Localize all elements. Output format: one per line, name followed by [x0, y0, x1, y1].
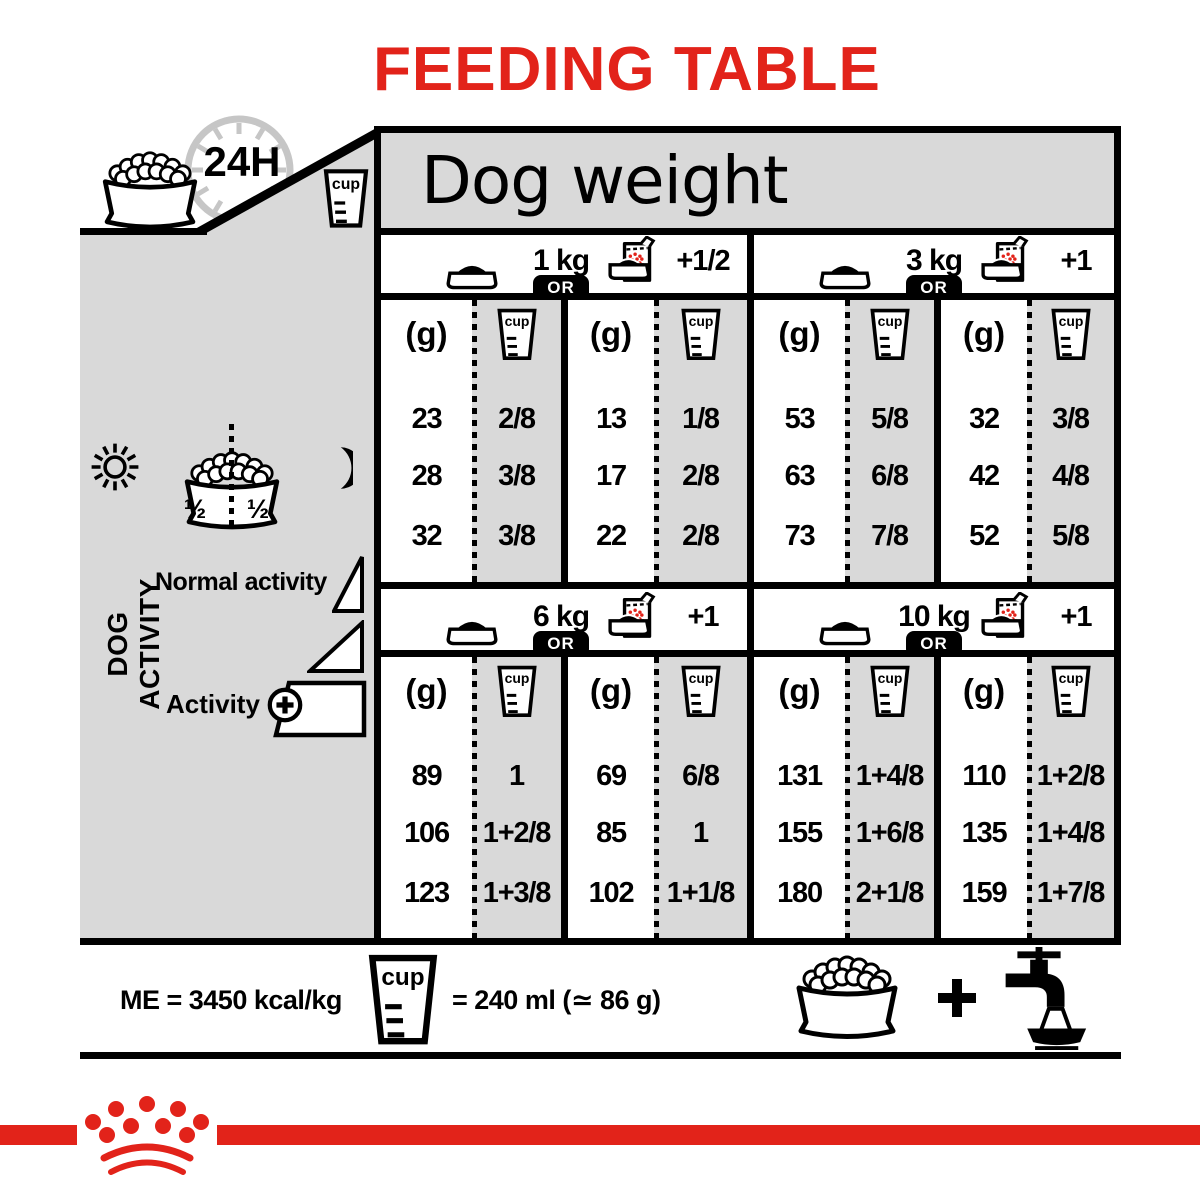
dog-activity-label: DOG ACTIVITY: [102, 544, 136, 744]
brand-stripe-left: [0, 1125, 77, 1145]
cell: 135: [941, 813, 1027, 853]
bowl-icon: [445, 257, 499, 291]
cell: 69: [568, 756, 654, 796]
section-header-6kg: 6 kg OR +1: [381, 589, 747, 650]
column-divider: [561, 300, 568, 582]
data-grid-10kg: (g) 131 155 180 1+4/8 1+6/8 2+1/8 (g) 11…: [754, 657, 1114, 938]
pouch-extra-label: +1: [1040, 601, 1112, 634]
cell: 1+2/8: [472, 813, 561, 853]
cell: 1: [654, 813, 747, 853]
table-border-right: [1114, 126, 1121, 945]
dotted-divider: [845, 657, 850, 938]
activity-ramp-medium-icon: [307, 620, 365, 674]
dotted-divider: [472, 657, 477, 938]
dotted-divider: [1027, 657, 1032, 938]
activity-label: Activity: [166, 689, 266, 720]
activity-plus-icon: [266, 686, 304, 724]
cell: 5/8: [1027, 516, 1114, 556]
cup-icon: [1049, 664, 1093, 718]
cell: 180: [754, 873, 845, 913]
table-border-bottom: [80, 938, 1121, 945]
activity-ramp-small-icon: [332, 554, 365, 614]
cell: 1+6/8: [845, 813, 934, 853]
cell: 32: [381, 516, 472, 556]
cup-icon: [495, 307, 539, 361]
cups-column-mixed: 1/8 2/8 2/8: [654, 300, 747, 582]
cell: 6/8: [654, 756, 747, 796]
pouch-extra-label: +1: [1040, 245, 1112, 278]
dotted-divider: [1027, 300, 1032, 582]
cell: 13: [568, 399, 654, 439]
cup-icon: [362, 953, 444, 1045]
dog-weight-header: Dog weight: [381, 133, 1114, 228]
table-rule-3: [374, 582, 1121, 589]
grams-column: (g) 53 63 73: [754, 300, 845, 582]
cup-equivalence-label: = 240 ml (≃ 86 g): [452, 984, 682, 1016]
royal-canin-crown-logo: [80, 1096, 214, 1184]
table-rule-2: [374, 293, 1121, 300]
cell: 85: [568, 813, 654, 853]
cell: 53: [754, 399, 845, 439]
cell: 2/8: [472, 399, 561, 439]
cup-icon: [321, 168, 371, 228]
dotted-divider: [472, 300, 477, 582]
weight-label: 10 kg: [884, 600, 984, 634]
cell: 106: [381, 813, 472, 853]
cell: 123: [381, 873, 472, 913]
grams-unit: (g): [754, 672, 845, 710]
me-kcal-label: ME = 3450 kcal/kg: [120, 984, 350, 1016]
moon-icon: [321, 446, 353, 490]
column-divider: [934, 300, 941, 582]
cell: 2/8: [654, 456, 747, 496]
cell: 22: [568, 516, 654, 556]
grams-unit: (g): [568, 672, 654, 710]
weight-label: 3 kg: [884, 244, 984, 278]
feeding-table-page: cup FEEDING TABLE: [0, 0, 1200, 1200]
pouch-extra-label: +1/2: [667, 245, 739, 278]
dog-weight-label: Dog weight: [421, 142, 788, 219]
section-header-3kg: 3 kg OR +1: [754, 235, 1114, 293]
cell: 42: [941, 456, 1027, 496]
cup-icon: [495, 664, 539, 718]
water-tap-icon: [982, 946, 1096, 1052]
grams-column: (g) 23 28 32: [381, 300, 472, 582]
cell: 1+1/8: [654, 873, 747, 913]
column-divider: [934, 657, 941, 938]
bowl-icon: [818, 613, 872, 647]
weight-label: 1 kg: [511, 244, 611, 278]
cell: 1+2/8: [1027, 756, 1114, 796]
grams-column: (g) 131 155 180: [754, 657, 845, 938]
grams-column-mixed: (g) 13 17 22: [568, 300, 654, 582]
table-border-left: [374, 126, 381, 945]
cell: 5/8: [845, 399, 934, 439]
cell: 1+4/8: [1027, 813, 1114, 853]
grams-column-mixed: (g) 110 135 159: [941, 657, 1027, 938]
cups-column: 2/8 3/8 3/8: [472, 300, 561, 582]
data-grid-1kg: (g) 23 28 32 2/8 3/8 3/8 (g) 13 17 22 1/…: [381, 300, 747, 582]
grams-column-mixed: (g) 69 85 102: [568, 657, 654, 938]
cup-icon: [679, 664, 723, 718]
cups-column: 5/8 6/8 7/8: [845, 300, 934, 582]
cell: 102: [568, 873, 654, 913]
cell: 1+4/8: [845, 756, 934, 796]
cell: 131: [754, 756, 845, 796]
normal-activity-label: Normal activity: [155, 568, 340, 597]
data-grid-3kg: (g) 53 63 73 5/8 6/8 7/8 (g) 32 42 52 3/…: [754, 300, 1114, 582]
half-left-label: ½: [175, 494, 215, 525]
dotted-divider: [654, 657, 659, 938]
grams-unit: (g): [381, 315, 472, 353]
cell: 17: [568, 456, 654, 496]
bowl-icon: [818, 257, 872, 291]
cell: 159: [941, 873, 1027, 913]
table-rule-1: [374, 228, 1121, 235]
half-divider-dots: [229, 424, 234, 528]
grams-column-mixed: (g) 32 42 52: [941, 300, 1027, 582]
pouch-bowl-icon: [608, 592, 668, 642]
data-grid-6kg: (g) 89 106 123 1 1+2/8 1+3/8 (g) 69 85 1…: [381, 657, 747, 938]
plus-icon: [938, 979, 976, 1017]
brand-stripe-right: [217, 1125, 1200, 1145]
cup-icon: [679, 307, 723, 361]
cell: 1: [472, 756, 561, 796]
cell: 155: [754, 813, 845, 853]
pouch-bowl-icon: [608, 236, 668, 286]
kibble-bowl-icon: [762, 952, 932, 1044]
cups-column: 1 1+2/8 1+3/8: [472, 657, 561, 938]
cell: 63: [754, 456, 845, 496]
dotted-divider: [654, 300, 659, 582]
cell: 110: [941, 756, 1027, 796]
table-border-top: [374, 126, 1121, 133]
grams-unit: (g): [381, 672, 472, 710]
cup-icon: [1049, 307, 1093, 361]
sun-icon: [88, 440, 142, 494]
grams-unit: (g): [941, 672, 1027, 710]
cell: 7/8: [845, 516, 934, 556]
cell: 89: [381, 756, 472, 796]
cups-column-mixed: 3/8 4/8 5/8: [1027, 300, 1114, 582]
pouch-bowl-icon: [981, 592, 1041, 642]
cell: 3/8: [472, 516, 561, 556]
cell: 6/8: [845, 456, 934, 496]
section-header-10kg: 10 kg OR +1: [754, 589, 1114, 650]
cell: 23: [381, 399, 472, 439]
cell: 3/8: [1027, 399, 1114, 439]
footer-border-bottom: [80, 1052, 1121, 1059]
cups-column: 1+4/8 1+6/8 2+1/8: [845, 657, 934, 938]
grams-unit: (g): [568, 315, 654, 353]
cups-column-mixed: 1+2/8 1+4/8 1+7/8: [1027, 657, 1114, 938]
grams-column: (g) 89 106 123: [381, 657, 472, 938]
cell: 73: [754, 516, 845, 556]
grams-unit: (g): [941, 315, 1027, 353]
cell: 1+7/8: [1027, 873, 1114, 913]
cell: 2/8: [654, 516, 747, 556]
cup-icon: [868, 307, 912, 361]
bowl-icon: [445, 613, 499, 647]
cell: 52: [941, 516, 1027, 556]
grams-unit: (g): [754, 315, 845, 353]
half-right-label: ½: [238, 494, 278, 525]
column-divider: [561, 657, 568, 938]
pouch-extra-label: +1: [667, 601, 739, 634]
dotted-divider: [845, 300, 850, 582]
cups-column-mixed: 6/8 1 1+1/8: [654, 657, 747, 938]
table-rule-4: [374, 650, 1121, 657]
weight-label: 6 kg: [511, 600, 611, 634]
pouch-bowl-icon: [981, 236, 1041, 286]
cell: 4/8: [1027, 456, 1114, 496]
cell: 1+3/8: [472, 873, 561, 913]
cell: 1/8: [654, 399, 747, 439]
section-header-1kg: 1 kg OR +1/2: [381, 235, 747, 293]
cell: 28: [381, 456, 472, 496]
cup-icon: [868, 664, 912, 718]
cell: 2+1/8: [845, 873, 934, 913]
page-title: FEEDING TABLE: [127, 34, 1127, 105]
cell: 32: [941, 399, 1027, 439]
cell: 3/8: [472, 456, 561, 496]
